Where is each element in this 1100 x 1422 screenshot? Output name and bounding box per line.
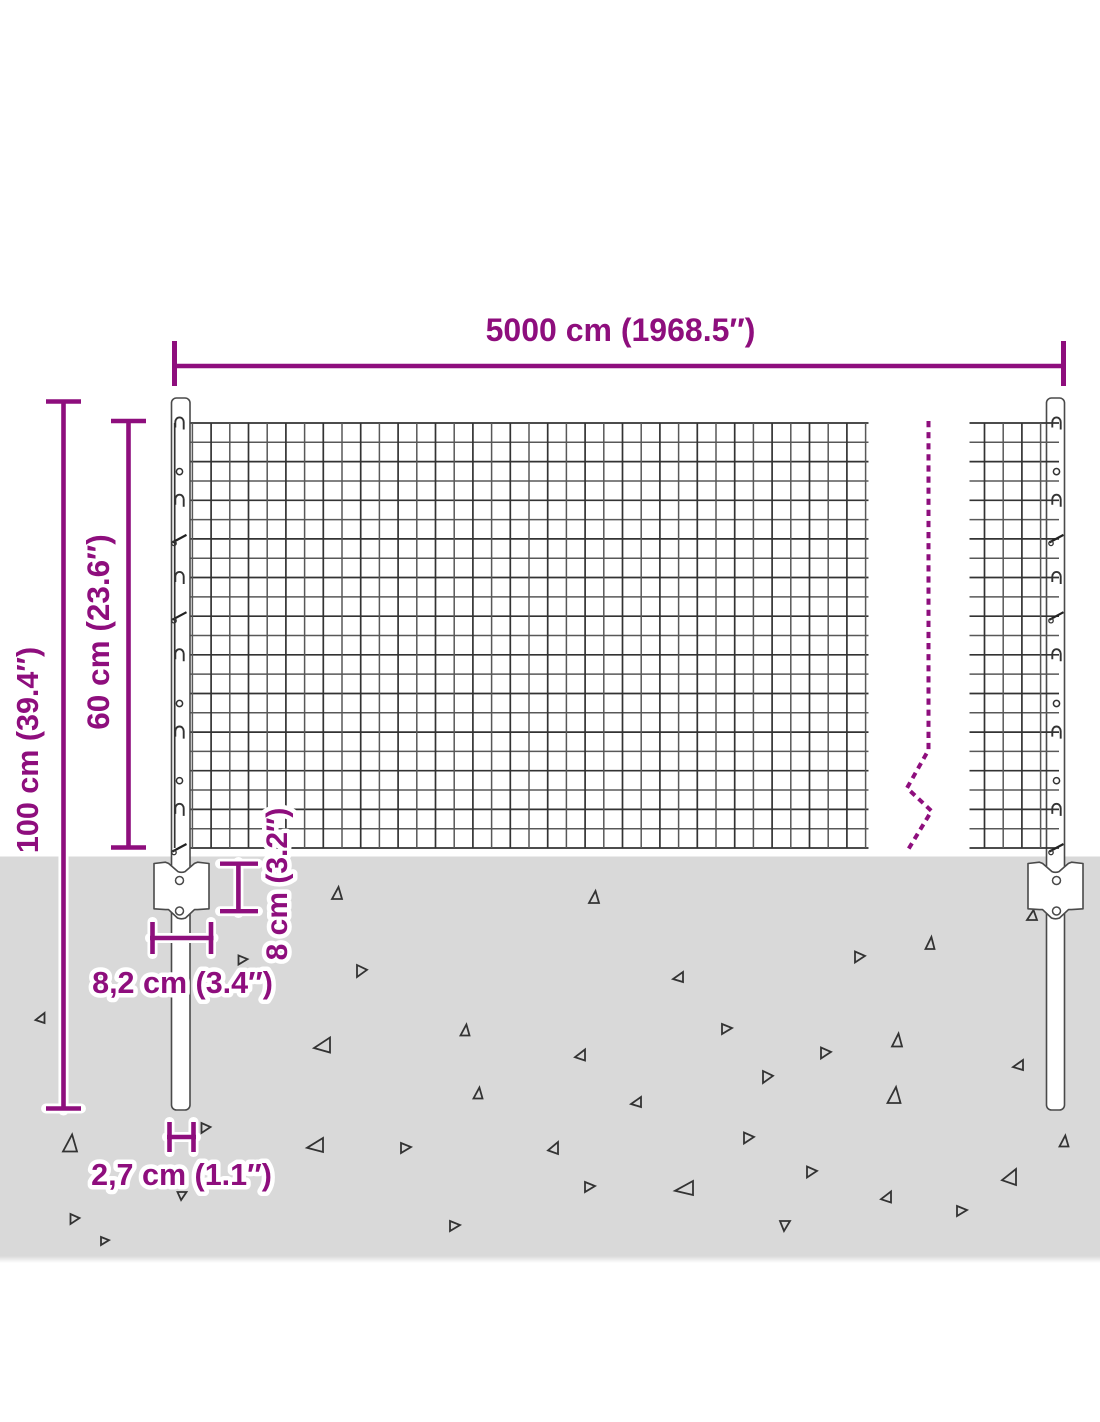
- svg-text:8,2 cm (3.4″): 8,2 cm (3.4″): [92, 966, 273, 1000]
- svg-text:5000 cm (1968.5″): 5000 cm (1968.5″): [486, 312, 756, 348]
- svg-text:8 cm (3.2″): 8 cm (3.2″): [261, 808, 294, 961]
- svg-text:60 cm (23.6″): 60 cm (23.6″): [80, 534, 116, 729]
- svg-text:100 cm (39.4″): 100 cm (39.4″): [11, 647, 45, 853]
- svg-text:2,7 cm (1.1″): 2,7 cm (1.1″): [91, 1158, 272, 1192]
